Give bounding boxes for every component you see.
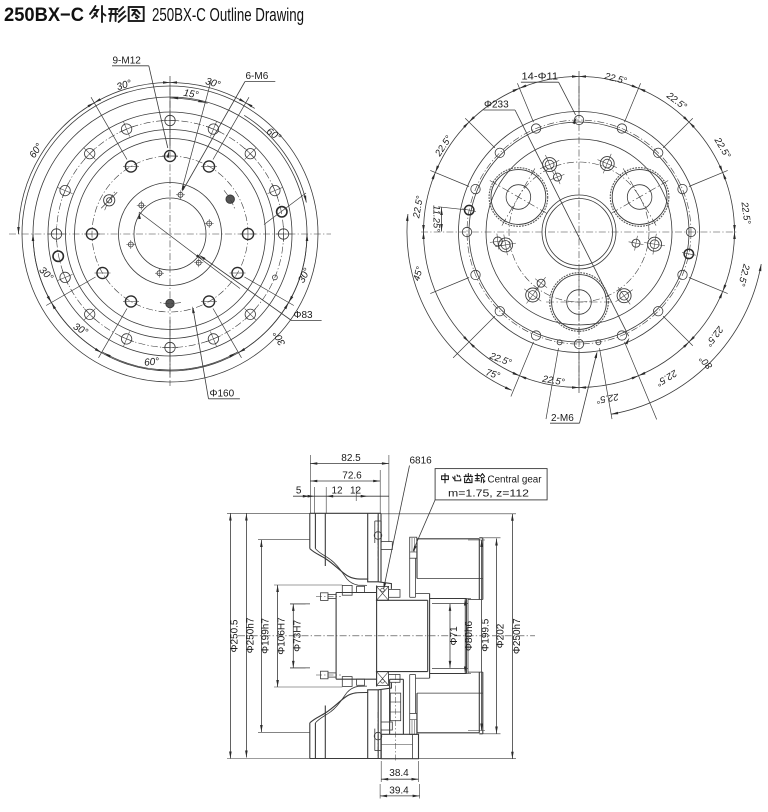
svg-text:6-M6: 6-M6 xyxy=(246,71,269,82)
svg-text:Φ73H7: Φ73H7 xyxy=(292,620,303,652)
svg-text:Φ199.5: Φ199.5 xyxy=(481,618,492,651)
svg-text:250BX−C: 250BX−C xyxy=(4,4,84,26)
svg-text:Φ250h7: Φ250h7 xyxy=(512,618,523,654)
svg-text:Φ71: Φ71 xyxy=(449,626,460,646)
svg-text:60°: 60° xyxy=(144,356,160,369)
svg-text:6816: 6816 xyxy=(410,456,433,467)
svg-text:82.5: 82.5 xyxy=(341,453,361,464)
svg-text:Φ80h6: Φ80h6 xyxy=(464,620,475,651)
svg-text:250BX-C Outline Drawing: 250BX-C Outline Drawing xyxy=(152,5,304,25)
svg-text:Φ106H7: Φ106H7 xyxy=(277,617,288,655)
svg-text:Φ233: Φ233 xyxy=(484,100,509,111)
svg-text:12: 12 xyxy=(331,486,343,497)
svg-text:Φ250.5: Φ250.5 xyxy=(230,619,241,652)
svg-text:38.4: 38.4 xyxy=(389,768,409,779)
svg-text:2-M6: 2-M6 xyxy=(551,413,574,424)
svg-text:11.25°: 11.25° xyxy=(431,205,442,232)
svg-text:39.4: 39.4 xyxy=(389,785,409,796)
svg-text:5: 5 xyxy=(296,486,302,497)
svg-text:14-Φ11: 14-Φ11 xyxy=(522,72,559,83)
svg-text:12: 12 xyxy=(350,486,362,497)
svg-text:9-M12: 9-M12 xyxy=(113,56,142,67)
svg-text:Φ83: Φ83 xyxy=(294,310,314,321)
svg-text:Φ199h7: Φ199h7 xyxy=(261,618,272,654)
svg-text:Φ160: Φ160 xyxy=(210,389,235,400)
svg-text:Φ202: Φ202 xyxy=(496,623,507,648)
svg-text:m=1.75, z=112: m=1.75, z=112 xyxy=(448,488,529,500)
svg-text:Central gear: Central gear xyxy=(488,475,543,486)
svg-text:Φ250h7: Φ250h7 xyxy=(246,617,257,653)
svg-text:72.6: 72.6 xyxy=(342,471,362,482)
